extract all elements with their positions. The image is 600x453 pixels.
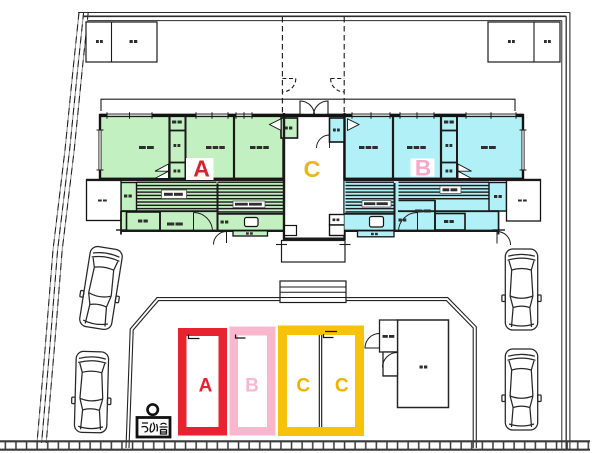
svg-text:C: C	[335, 376, 349, 397]
svg-text:C: C	[304, 156, 321, 182]
svg-text:C: C	[296, 376, 310, 397]
svg-text:B: B	[245, 376, 259, 397]
svg-text:B: B	[415, 156, 431, 181]
svg-text:A: A	[199, 376, 213, 397]
svg-text:A: A	[193, 156, 210, 182]
